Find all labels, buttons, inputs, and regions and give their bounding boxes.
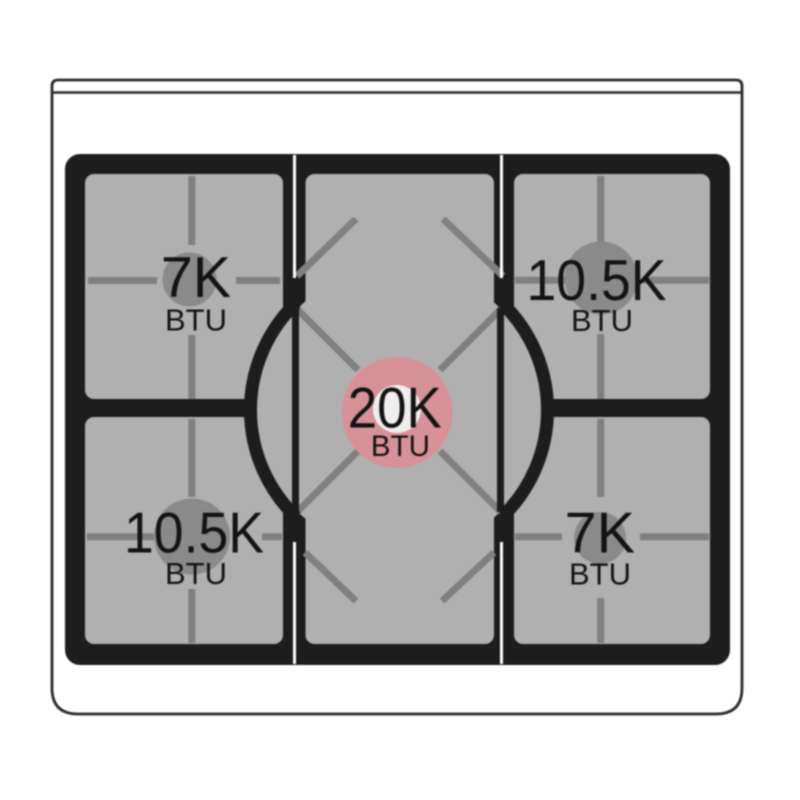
svg-text:BTU: BTU — [371, 430, 430, 463]
svg-text:BTU: BTU — [571, 303, 633, 338]
svg-text:7K: 7K — [161, 246, 231, 310]
svg-text:BTU: BTU — [569, 557, 631, 592]
svg-text:BTU: BTU — [165, 303, 227, 338]
svg-text:BTU: BTU — [165, 556, 227, 591]
